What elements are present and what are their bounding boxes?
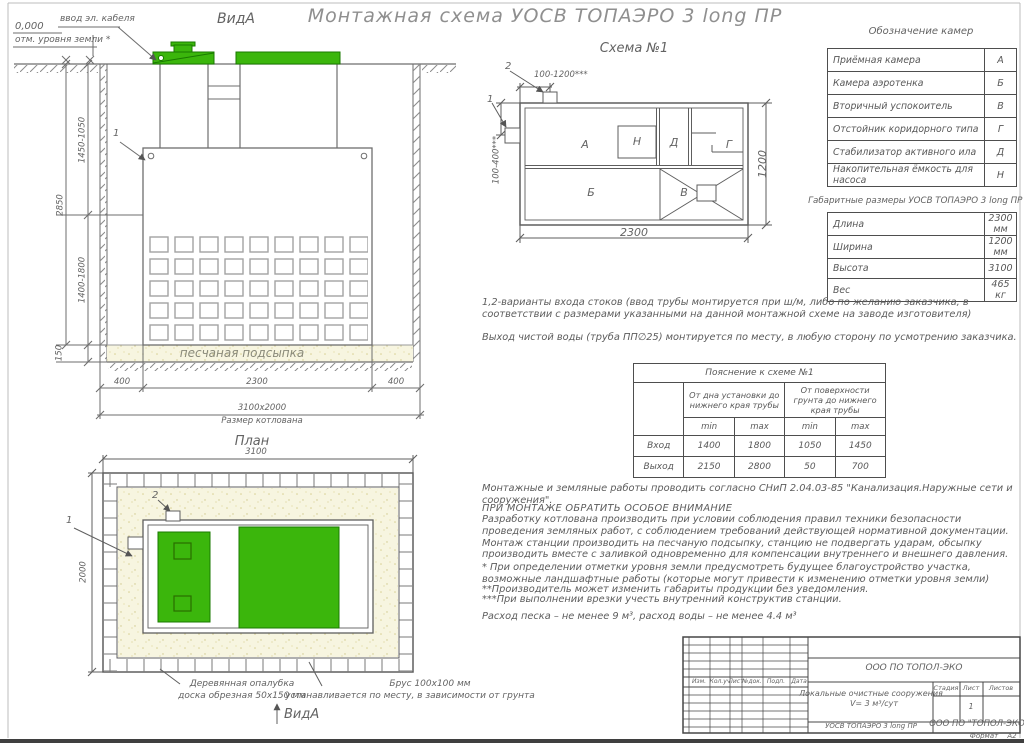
pit-size-value: 3100х2000 [238,404,286,413]
plan-marker-2: 2 [152,491,158,502]
table-row: Камера аэротенкаБ [828,72,1017,95]
table-row: Приёмная камераА [828,49,1017,72]
tank-lid-large [236,52,340,64]
schema-view [492,71,772,243]
chambers-table: Приёмная камераА Камера аэротенкаБ Втори… [827,48,1017,187]
titleblock-col-izm: Изм. [692,679,706,685]
note-clean-water-outlet: Выход чистой воды (труба ПП∅25) монтируе… [482,332,1020,344]
chamber-label-d: Д [670,137,679,149]
titleblock-stage-label: Стадия [934,685,959,692]
table-row: От дна установки до нижнего края трубы О… [634,383,886,418]
dim-sand-thickness: 150 [55,345,64,361]
chamber-name: Приёмная камера [828,49,985,72]
dimensions-table-title: Габаритные размеры УОСВ ТОПАЭРО 3 long П… [808,197,1024,206]
plan-view-direction-label: ВидА [284,708,319,722]
note-footnote-3: ***При выполнении врезки учесть внутренн… [482,594,1020,606]
chamber-label-g: Г [726,139,732,151]
format-value: А2 [1007,733,1016,741]
chamber-label-a: А [581,139,589,151]
plan-inlet-side [128,537,143,549]
schema-inlet-top [543,92,557,103]
chamber-label-b: Б [587,187,595,199]
schema-dim-length: 2300 [620,227,648,239]
chamber-code: А [985,49,1017,72]
dim-tank-length: 2300 [246,378,268,387]
note-consumption: Расход песка – не менее 9 м³, расход вод… [482,611,1020,623]
table-row: Длина2300 мм [828,213,1017,236]
titleblock-sheets-label: Листов [989,685,1013,692]
plan-inlet-top [166,511,180,521]
format-label: Формат [970,733,998,741]
titleblock-company: ООО ПО ТОПОЛ-ЭКО [865,664,962,674]
note-attention-heading: ПРИ МОНТАЖЕ ОБРАТИТЬ ОСОБОЕ ВНИМАНИЕ [482,503,1020,515]
elevation-note: отм. уровня земли * [15,36,110,46]
schema-title: Схема №1 [600,42,668,56]
chambers-table-title: Обозначение камер [869,27,974,38]
dim-total-depth: 2850 [56,194,65,216]
drawing-sheet: Монтажная схема УОСВ ТОПАЭРО 3 long ПР В… [0,0,1024,746]
dim-depth-top: 1450-1050 [78,117,87,163]
titleblock-col-koluch: Кол.уч [710,679,731,685]
titleblock-sheet-label: Лист [963,685,979,692]
note-excavation-paragraph: Разработку котлована производить при усл… [482,514,1020,561]
titleblock-col-data: Дата [791,679,807,685]
titleblock-product: УОСВ ТОПАЭРО 3 long ПР [825,723,917,731]
chamber-label-v: В [680,187,688,199]
station-lid-large-plan [239,527,339,628]
table-row: Вход 1400 1800 1050 1450 [634,436,886,457]
explanation-group-1: От дна установки до нижнего края трубы [684,383,785,418]
page-title: Монтажная схема УОСВ ТОПАЭРО 3 long ПР [308,6,783,27]
formwork-label-line1: Деревянная опалубка [190,680,295,690]
table-row: Высота3100 [828,259,1017,279]
schema-dim-inlet-top: 100-1200*** [534,71,588,80]
table-row: Накопительная ёмкость для насосаН [828,164,1017,187]
cable-entry-label: ввод эл. кабеля [60,15,135,25]
explanation-table: Пояснение к схеме №1 От дна установки до… [633,363,886,478]
titleblock-sheet-number: 1 [968,703,973,712]
table-row: Вторичный успокоительВ [828,95,1017,118]
titleblock-project-line2: V= 3 м³/сут [850,700,898,709]
dim-depth-bottom: 1400-1800 [78,257,87,303]
section-view [13,27,456,419]
titleblock-company-short: ООО ПО "ТОПОЛ-ЭКО [929,720,1024,729]
schema-inlet-side [505,128,520,143]
schema-marker-2: 2 [505,62,511,73]
titleblock-project-line1: Локальные очистные сооружения [799,690,943,699]
table-row: Стабилизатор активного илаД [828,141,1017,164]
dim-offset-right: 400 [388,378,404,387]
note-footnote-1: * При определении отметки уровня земли п… [482,562,1020,586]
dim-offset-left: 400 [114,378,130,387]
beam-label-line1: Брус 100х100 мм [389,680,470,690]
plan-dim-width: 3100 [245,448,267,457]
plan-marker-1: 1 [66,516,72,527]
tank-ribbing [147,234,368,343]
chamber-label-n: Н [633,136,641,148]
section-view-label: ВидА [217,12,255,27]
section-marker-1: 1 [113,129,119,140]
table-row: Отстойник коридорного типаГ [828,118,1017,141]
plan-dim-height: 2000 [79,561,88,583]
sand-bed-label: песчаная подсыпка [180,347,305,360]
elevation-value: 0,000 [15,22,44,33]
explanation-group-2: От поверхности грунта до нижнего края тр… [785,383,886,418]
titleblock-col-podp: Подп. [767,679,785,685]
table-row: Ширина1200 мм [828,236,1017,259]
explanation-title: Пояснение к схеме №1 [634,364,886,383]
station-lid-small-plan [158,532,210,622]
sheet-bottom-edge [0,739,1024,743]
schema-marker-1: 1 [487,95,493,106]
tank-lid-small [153,42,214,64]
table-row: Пояснение к схеме №1 [634,364,886,383]
note-inlet-variants: 1,2-варианты входа стоков (ввод трубы мо… [482,297,1020,321]
table-row: Выход 2150 2800 50 700 [634,457,886,478]
titleblock-col-ndok: №док. [742,679,762,685]
dimensions-table: Длина2300 мм Ширина1200 мм Высота3100 Ве… [827,212,1017,302]
beam-label-line2: устанавливается по месту, в зависимости … [285,692,535,702]
schema-dim-width: 1200 [757,150,769,178]
schema-dim-inlet-side: 100-400*** [492,136,501,184]
pit-size-label: Размер котлована [221,417,303,426]
